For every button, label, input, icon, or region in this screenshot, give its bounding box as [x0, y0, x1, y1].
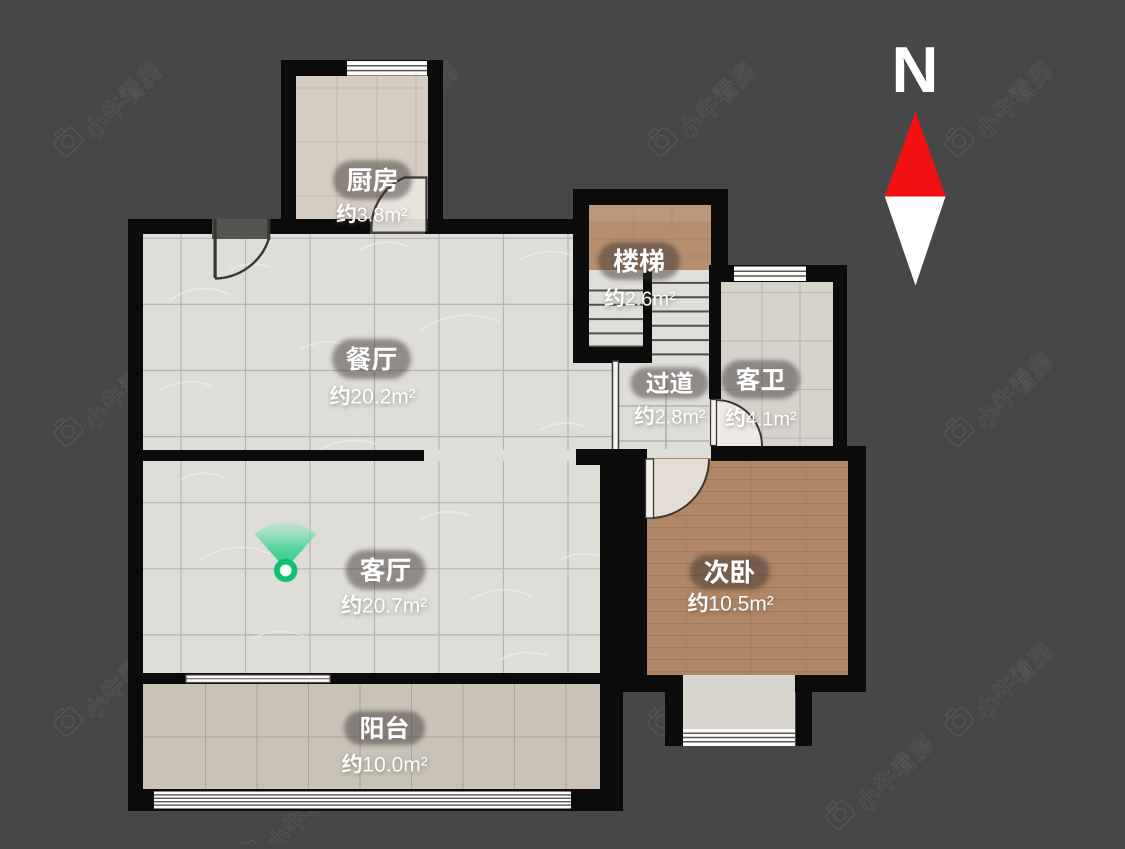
svg-text:2.8m²: 2.8m² — [655, 406, 706, 428]
svg-text:20.2m²: 20.2m² — [350, 386, 415, 409]
svg-text:4.1m²: 4.1m² — [746, 408, 797, 430]
svg-text:N: N — [892, 33, 939, 106]
svg-text:10.0m²: 10.0m² — [362, 754, 427, 777]
svg-text:2.6m²: 2.6m² — [625, 288, 676, 310]
svg-text:3.8m²: 3.8m² — [357, 204, 408, 226]
svg-text:20.7m²: 20.7m² — [362, 595, 427, 618]
svg-text:10.5m²: 10.5m² — [708, 593, 773, 616]
